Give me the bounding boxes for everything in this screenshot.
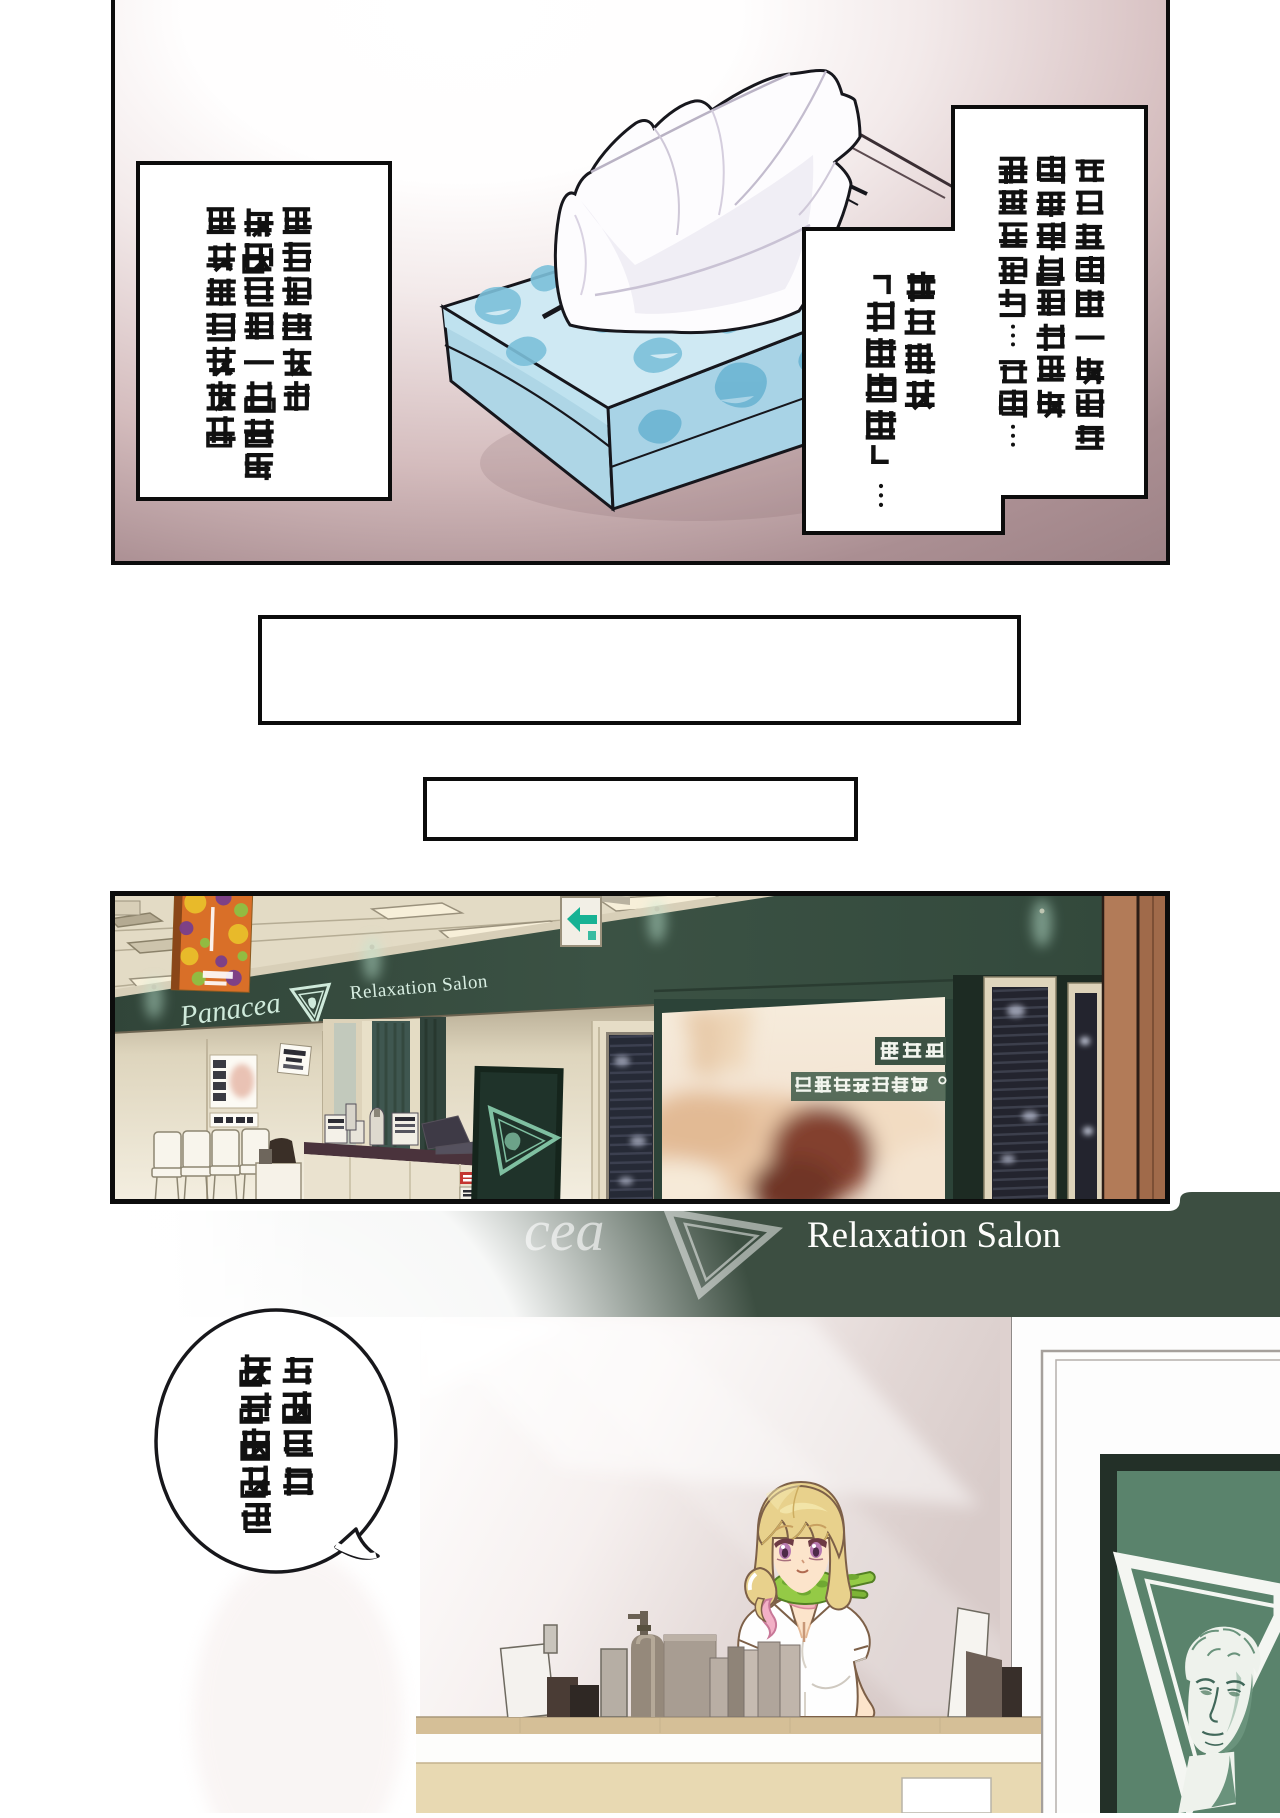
- svg-text:Relaxation Salon: Relaxation Salon: [807, 1215, 1061, 1256]
